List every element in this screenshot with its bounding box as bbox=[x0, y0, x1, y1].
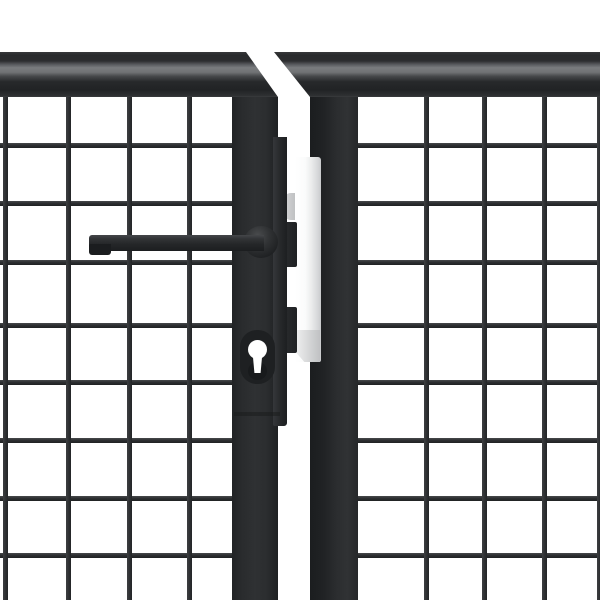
right-mesh-grid bbox=[354, 97, 600, 600]
mesh-wire bbox=[0, 496, 236, 501]
mesh-wire bbox=[542, 97, 547, 600]
mesh-wire bbox=[482, 97, 487, 600]
mesh-wire bbox=[354, 143, 600, 148]
mesh-wire bbox=[354, 496, 600, 501]
right-panel-top-rail bbox=[274, 52, 600, 97]
mesh-wire bbox=[0, 323, 236, 328]
mesh-wire bbox=[0, 201, 236, 206]
mesh-wire bbox=[424, 97, 429, 600]
mesh-wire bbox=[354, 553, 600, 558]
door-handle-step bbox=[89, 244, 111, 255]
gate-product-image bbox=[0, 0, 600, 600]
mesh-wire bbox=[354, 380, 600, 385]
left-panel-top-rail bbox=[0, 52, 278, 97]
striker-plate-foot bbox=[297, 330, 320, 362]
door-handle bbox=[89, 235, 264, 251]
mesh-wire bbox=[0, 260, 236, 265]
left-mesh-grid bbox=[0, 97, 236, 600]
mesh-wire bbox=[354, 438, 600, 443]
gate-latch-cover-strip bbox=[273, 137, 287, 426]
mesh-wire bbox=[354, 201, 600, 206]
mesh-wire bbox=[0, 553, 236, 558]
mesh-wire bbox=[354, 323, 600, 328]
mesh-wire bbox=[0, 380, 236, 385]
mesh-wire bbox=[354, 260, 600, 265]
mesh-wire bbox=[66, 97, 71, 600]
mesh-wire bbox=[3, 97, 8, 600]
lock-box-step bbox=[234, 412, 280, 416]
mesh-wire bbox=[187, 97, 192, 600]
mesh-wire bbox=[0, 143, 236, 148]
mesh-wire bbox=[127, 97, 132, 600]
mesh-wire bbox=[0, 438, 236, 443]
